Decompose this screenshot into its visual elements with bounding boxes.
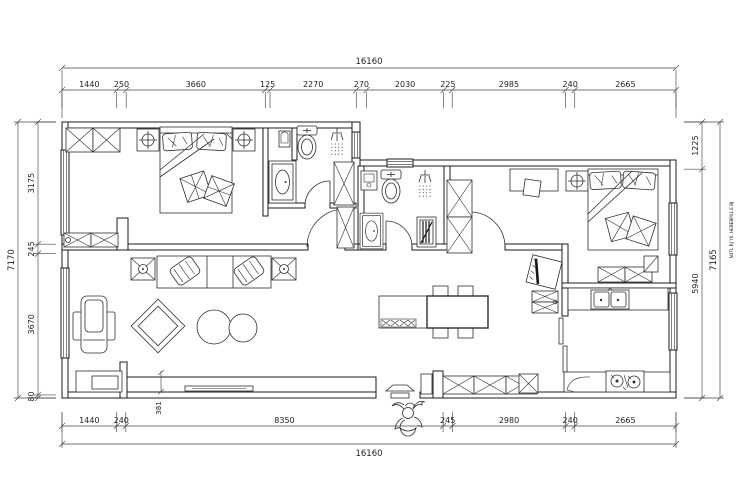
window-right-kitchen	[669, 293, 677, 350]
shower-bath2	[419, 170, 431, 197]
bed2-foot-box	[644, 256, 658, 272]
svg-text:240: 240	[563, 80, 578, 89]
coffee-table	[131, 299, 185, 353]
tv-ledge-dim-label: 381	[155, 401, 163, 414]
svg-text:240: 240	[114, 416, 129, 425]
kitchen-top-counter	[568, 288, 668, 310]
nightstand-bedroom2	[566, 171, 588, 191]
vertical-watermark-text: N4TL RJ Y6. HEBEBPXL E BJ	[729, 202, 734, 259]
toilet-bath2	[381, 170, 401, 203]
tv-cabinet	[76, 371, 122, 392]
svg-text:240: 240	[563, 416, 578, 425]
tv-angled	[526, 255, 562, 289]
window-left-living	[61, 268, 69, 358]
washing-machine	[417, 217, 436, 247]
floor-plan-canvas: 381 N4TL RJ Y6. HEBEBPXL E BJ 1440250366…	[0, 0, 740, 500]
svg-text:2665: 2665	[615, 80, 635, 89]
dining-island	[379, 296, 428, 328]
svg-text:270: 270	[354, 80, 369, 89]
svg-text:245: 245	[27, 241, 36, 256]
wardrobe-master	[66, 128, 120, 152]
wall-bedroom1-right	[263, 128, 268, 216]
svg-text:3670: 3670	[27, 314, 36, 334]
svg-text:80: 80	[27, 391, 36, 401]
bath1-small-sink	[279, 131, 290, 147]
nightstand-master-left	[137, 129, 159, 151]
wall-bottom-left	[62, 392, 376, 398]
svg-text:2665: 2665	[615, 416, 635, 425]
entry-step	[386, 385, 414, 398]
entry-figure-doodle	[392, 401, 425, 436]
svg-text:245: 245	[440, 416, 455, 425]
dining-table	[427, 296, 488, 328]
wall-kitchen-left	[562, 244, 568, 316]
lounge-chair	[73, 296, 115, 353]
svg-text:5940: 5940	[691, 273, 700, 293]
hall-cabinet	[334, 162, 354, 248]
wall-bedroom2-bottom-r	[505, 244, 568, 250]
door-bath1	[305, 181, 330, 206]
kitchen-bottom-counter	[564, 371, 670, 392]
side-table-right	[272, 258, 296, 280]
desk-bedroom2	[510, 169, 558, 197]
svg-text:7165: 7165	[709, 249, 719, 271]
svg-text:7170: 7170	[7, 249, 17, 271]
shower-bath1	[331, 128, 343, 155]
low-cabinet-master	[64, 233, 118, 247]
toilet-bath1	[297, 126, 317, 159]
svg-text:2030: 2030	[395, 80, 415, 89]
nightstand-master-right	[233, 129, 255, 151]
door-bath2	[386, 221, 412, 247]
svg-text:225: 225	[440, 80, 455, 89]
vanity-bath1	[269, 161, 296, 203]
svg-text:2980: 2980	[499, 416, 519, 425]
pouf-tables	[197, 310, 257, 344]
master-bed	[160, 127, 234, 213]
svg-text:1440: 1440	[79, 80, 99, 89]
svg-text:16160: 16160	[355, 57, 382, 67]
window-left-bedroom1	[61, 150, 69, 235]
side-table-left	[131, 258, 155, 280]
pier-bedroom1	[117, 218, 128, 250]
svg-text:1225: 1225	[691, 135, 700, 155]
floor-plan-sheet: 381 N4TL RJ Y6. HEBEBPXL E BJ 1440250366…	[0, 0, 740, 500]
vanity-bath2	[360, 213, 383, 249]
svg-text:2270: 2270	[303, 80, 323, 89]
svg-text:250: 250	[114, 80, 129, 89]
svg-text:2985: 2985	[499, 80, 519, 89]
door-kitchen-slider	[559, 318, 567, 372]
svg-text:3660: 3660	[186, 80, 206, 89]
svg-text:3175: 3175	[27, 173, 36, 193]
pier-entry	[433, 371, 443, 398]
window-step-bath1	[352, 132, 360, 158]
window-right-bedroom2	[669, 203, 677, 255]
svg-text:8350: 8350	[274, 416, 294, 425]
svg-text:16160: 16160	[355, 449, 382, 459]
wall-right	[670, 160, 676, 398]
svg-text:1440: 1440	[79, 416, 99, 425]
shoe-box-dining	[532, 291, 558, 313]
wall-bath1-bottom-l	[268, 203, 305, 208]
wall-bath1-divider	[292, 128, 297, 160]
bed-bedroom2	[588, 169, 658, 250]
wall-kitchen-top	[562, 283, 676, 288]
door-bedroom2	[470, 212, 505, 247]
window-top-bath2	[387, 159, 413, 167]
sofa	[157, 255, 271, 288]
tv-living	[185, 386, 253, 391]
wardrobe-bedroom2	[447, 180, 472, 253]
bath2-small-sink	[361, 171, 377, 190]
svg-text:125: 125	[260, 80, 275, 89]
